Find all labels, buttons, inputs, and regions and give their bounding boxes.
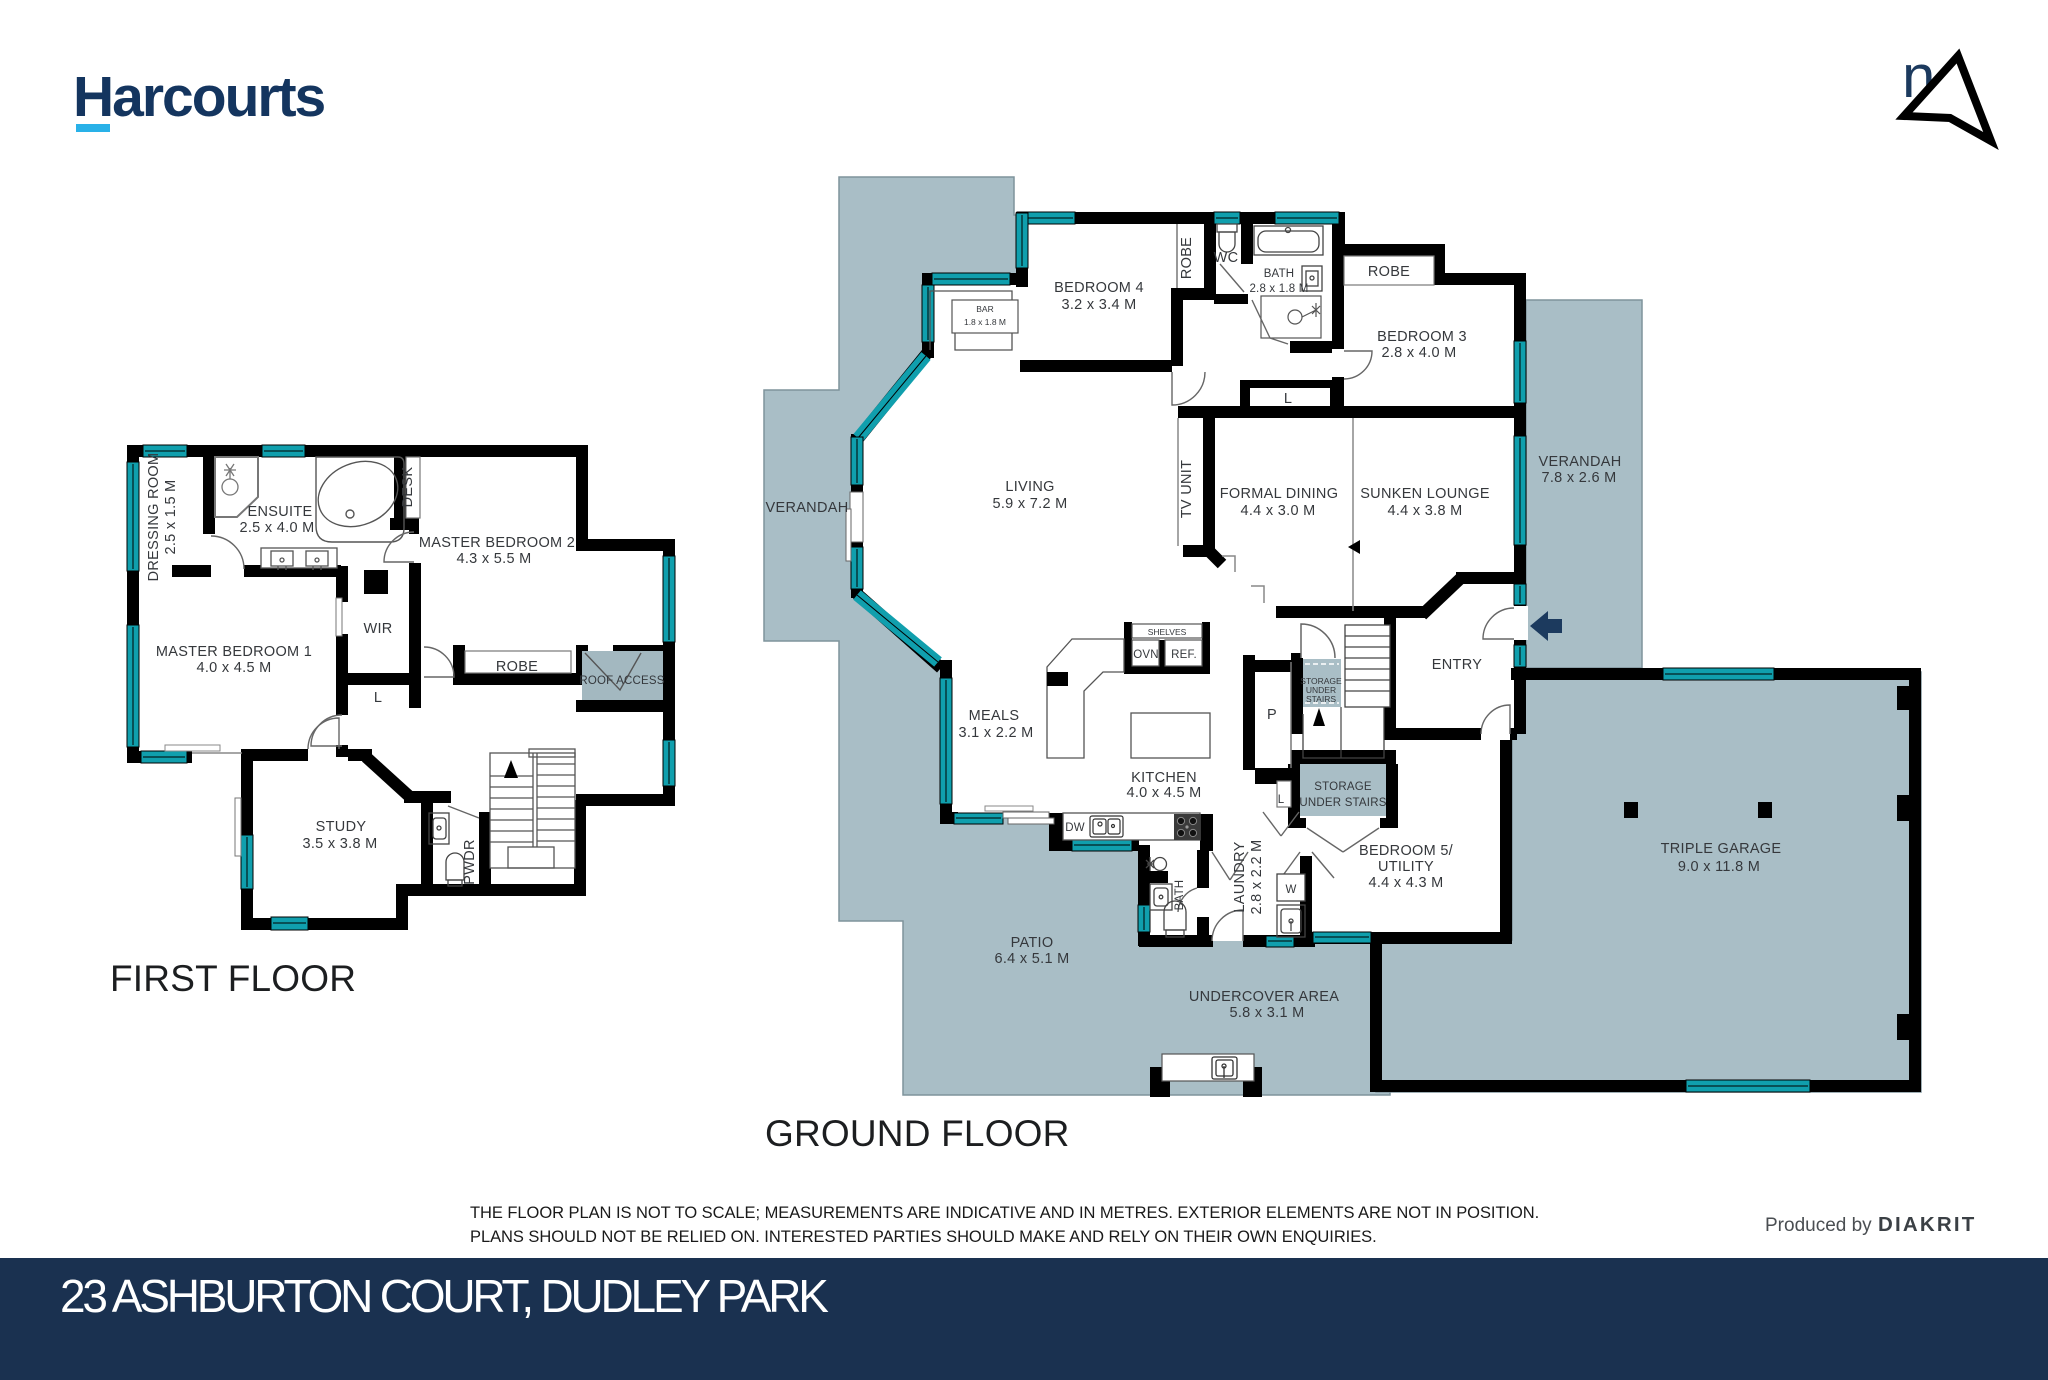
svg-text:2.8 x 1.8 M: 2.8 x 1.8 M — [1249, 283, 1308, 295]
svg-text:DIAKRIT: DIAKRIT — [1878, 1213, 1977, 1236]
svg-text:SHELVES: SHELVES — [1148, 627, 1187, 637]
svg-text:GROUND FLOOR: GROUND FLOOR — [765, 1113, 1070, 1154]
svg-text:4.0 x 4.5 M: 4.0 x 4.5 M — [1126, 785, 1201, 801]
svg-text:ROOF ACCESS: ROOF ACCESS — [579, 675, 664, 687]
svg-text:5.8 x 3.1 M: 5.8 x 3.1 M — [1229, 1005, 1304, 1021]
svg-text:UNDER STAIRS: UNDER STAIRS — [1299, 797, 1386, 809]
svg-text:KITCHEN: KITCHEN — [1131, 770, 1197, 786]
svg-text:ROBE: ROBE — [496, 659, 538, 675]
svg-text:PATIO: PATIO — [1011, 935, 1054, 951]
svg-text:2.5 x 4.0 M: 2.5 x 4.0 M — [239, 520, 314, 536]
svg-text:PWDR: PWDR — [462, 839, 478, 885]
svg-text:BEDROOM 5/: BEDROOM 5/ — [1359, 843, 1454, 859]
svg-text:SUNKEN LOUNGE: SUNKEN LOUNGE — [1360, 486, 1490, 502]
svg-text:PLANS SHOULD NOT BE RELIED ON.: PLANS SHOULD NOT BE RELIED ON. INTERESTE… — [470, 1228, 1377, 1246]
svg-text:Produced by: Produced by — [1765, 1215, 1872, 1236]
svg-text:THE FLOOR PLAN IS NOT TO SCALE: THE FLOOR PLAN IS NOT TO SCALE; MEASUREM… — [470, 1204, 1539, 1222]
svg-text:BATH: BATH — [1264, 268, 1295, 280]
svg-text:4.4 x 3.8 M: 4.4 x 3.8 M — [1387, 503, 1462, 519]
svg-text:TRIPLE GARAGE: TRIPLE GARAGE — [1661, 841, 1782, 857]
svg-text:UNDERCOVER AREA: UNDERCOVER AREA — [1189, 989, 1339, 1005]
svg-text:BEDROOM 3: BEDROOM 3 — [1377, 329, 1467, 345]
svg-text:ROBE: ROBE — [1179, 237, 1195, 279]
svg-text:FORMAL DINING: FORMAL DINING — [1220, 486, 1339, 502]
svg-text:2.8 x 2.2 M: 2.8 x 2.2 M — [1249, 839, 1265, 914]
svg-text:FIRST FLOOR: FIRST FLOOR — [110, 958, 356, 999]
svg-text:STAIRS: STAIRS — [1306, 694, 1336, 704]
svg-text:ROBE: ROBE — [1368, 264, 1410, 280]
svg-text:2.8 x 4.0 M: 2.8 x 4.0 M — [1381, 345, 1456, 361]
svg-text:BATH: BATH — [1174, 880, 1186, 911]
svg-text:VERANDAH: VERANDAH — [766, 500, 849, 516]
svg-text:9.0 x 11.8 M: 9.0 x 11.8 M — [1678, 859, 1760, 875]
svg-text:UTILITY: UTILITY — [1378, 859, 1434, 875]
svg-text:7.8 x 2.6 M: 7.8 x 2.6 M — [1541, 470, 1616, 486]
svg-text:ENSUITE: ENSUITE — [248, 504, 313, 520]
svg-text:DESK: DESK — [400, 467, 416, 508]
svg-text:P: P — [1267, 707, 1277, 723]
svg-text:REF.: REF. — [1171, 649, 1197, 661]
svg-text:MASTER BEDROOM 1: MASTER BEDROOM 1 — [156, 644, 312, 660]
svg-text:Harcourts: Harcourts — [73, 65, 325, 129]
svg-text:L: L — [374, 690, 382, 706]
svg-text:BAR: BAR — [976, 304, 993, 314]
svg-text:4.4 x 3.0 M: 4.4 x 3.0 M — [1240, 503, 1315, 519]
svg-text:LAUNDRY: LAUNDRY — [1232, 841, 1248, 912]
svg-text:DRESSING ROOM: DRESSING ROOM — [146, 453, 162, 582]
svg-text:DW: DW — [1065, 822, 1085, 834]
svg-text:WC: WC — [1214, 250, 1239, 266]
svg-text:MEALS: MEALS — [969, 708, 1020, 724]
svg-text:WIR: WIR — [363, 621, 392, 637]
svg-text:L: L — [1284, 391, 1292, 407]
svg-text:OVN: OVN — [1133, 649, 1159, 661]
svg-text:6.4 x 5.1 M: 6.4 x 5.1 M — [994, 951, 1069, 967]
svg-text:3.1 x 2.2 M: 3.1 x 2.2 M — [958, 725, 1033, 741]
svg-text:4.0 x 4.5 M: 4.0 x 4.5 M — [196, 660, 271, 676]
svg-text:TV UNIT: TV UNIT — [1179, 460, 1195, 519]
svg-text:STORAGE: STORAGE — [1314, 781, 1372, 793]
svg-text:3.2 x 3.4 M: 3.2 x 3.4 M — [1061, 297, 1136, 313]
svg-text:3.5 x 3.8 M: 3.5 x 3.8 M — [302, 836, 377, 852]
svg-text:LIVING: LIVING — [1005, 479, 1054, 495]
svg-text:MASTER BEDROOM 2: MASTER BEDROOM 2 — [419, 535, 575, 551]
svg-text:4.3 x 5.5 M: 4.3 x 5.5 M — [456, 551, 531, 567]
svg-text:W: W — [1285, 884, 1296, 896]
svg-text:L: L — [1278, 794, 1285, 806]
svg-text:5.9 x 7.2 M: 5.9 x 7.2 M — [992, 496, 1067, 512]
svg-text:23 ASHBURTON COURT, DUDLEY PAR: 23 ASHBURTON COURT, DUDLEY PARK — [60, 1270, 829, 1322]
svg-text:4.4 x 4.3 M: 4.4 x 4.3 M — [1368, 875, 1443, 891]
svg-text:2.5 x 1.5 M: 2.5 x 1.5 M — [163, 479, 179, 554]
svg-text:BEDROOM 4: BEDROOM 4 — [1054, 280, 1144, 296]
svg-text:VERANDAH: VERANDAH — [1539, 454, 1622, 470]
svg-text:ENTRY: ENTRY — [1432, 657, 1482, 673]
svg-text:1.8 x 1.8 M: 1.8 x 1.8 M — [964, 317, 1006, 327]
svg-text:STUDY: STUDY — [316, 819, 367, 835]
